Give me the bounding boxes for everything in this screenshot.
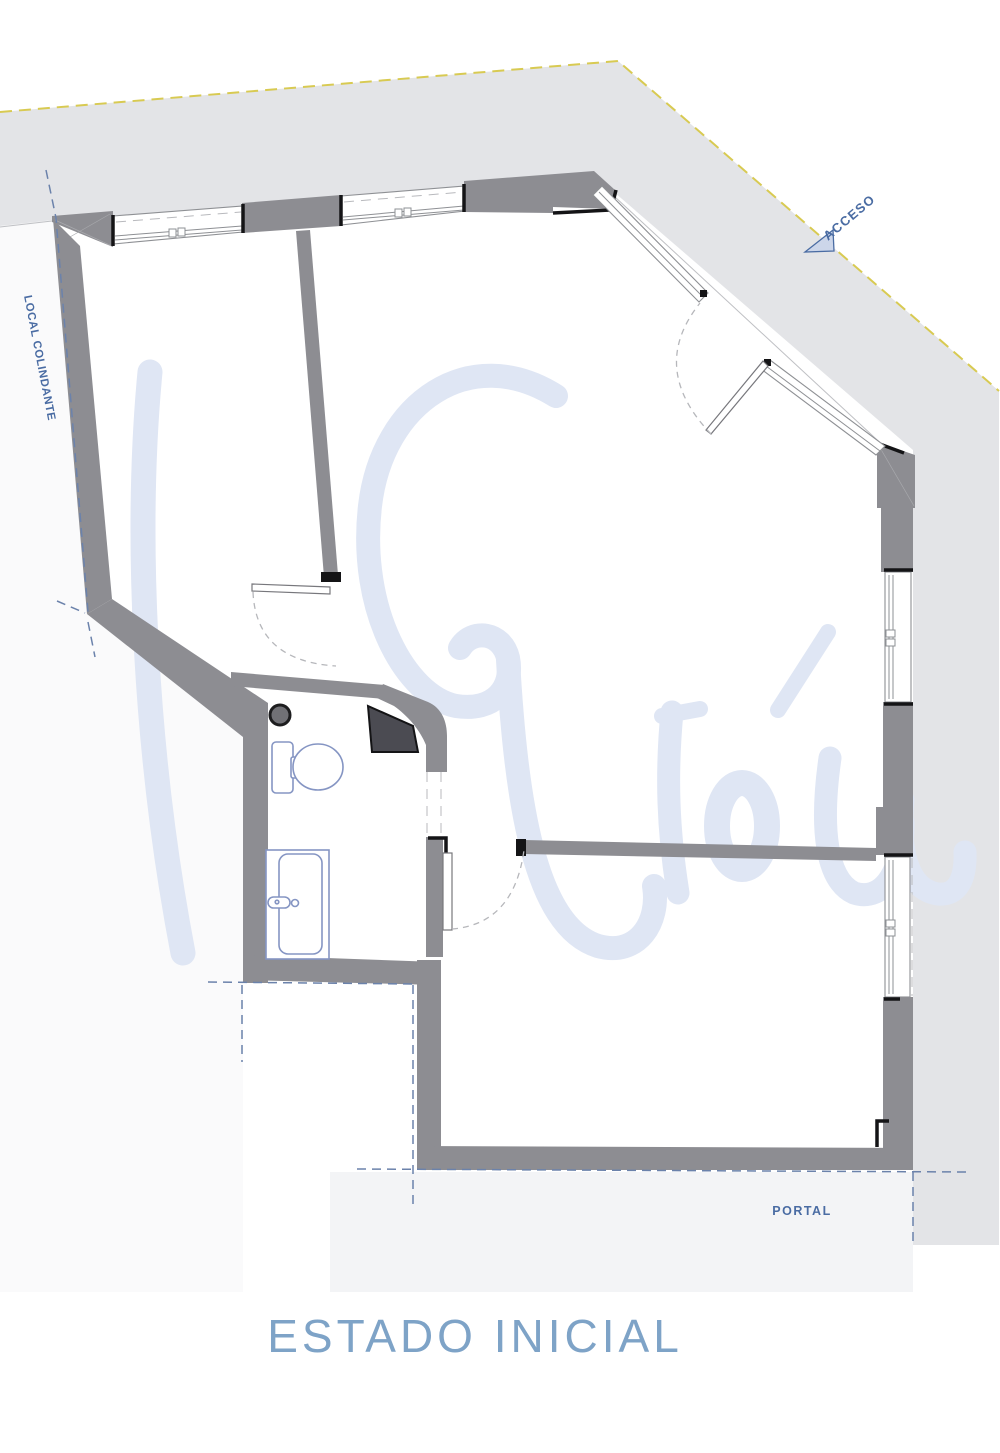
plan-title: ESTADO INICIAL	[267, 1310, 683, 1362]
sink	[266, 850, 329, 959]
bathroom-east-wall	[426, 837, 443, 957]
adjacent-premises-area	[0, 220, 243, 1292]
label-portal: PORTAL	[772, 1204, 831, 1218]
doors	[252, 303, 768, 930]
entrance-door	[676, 303, 768, 434]
dashed-opening	[426, 772, 442, 837]
right-wall-pier	[876, 807, 913, 855]
bathroom-fixtures	[266, 705, 343, 959]
portal-area	[330, 1172, 913, 1292]
lower-room-left-wall	[417, 960, 441, 1148]
right-wall-seg-a	[881, 506, 913, 572]
bottom-wall	[417, 1146, 913, 1170]
interior-partition	[296, 230, 338, 577]
right-wall-seg-c	[883, 997, 913, 1148]
toilet	[272, 742, 343, 793]
column	[270, 705, 290, 725]
partition-end-cap	[321, 572, 341, 582]
right-window-lower	[884, 855, 913, 999]
left-room-door	[252, 584, 336, 666]
right-window-upper	[884, 570, 913, 704]
floor-plan-page: ACCESO LOCAL COLINDANTE PORTAL ESTADO IN…	[0, 0, 1000, 1453]
right-wall-seg-b	[883, 702, 913, 807]
lower-room-door	[443, 850, 524, 930]
bathroom-left-wall	[243, 703, 268, 983]
horizontal-wall-end-cap	[516, 839, 526, 856]
label-acceso: ACCESO	[820, 191, 878, 243]
floor-plan-svg: ACCESO LOCAL COLINDANTE PORTAL ESTADO IN…	[0, 0, 1000, 1453]
